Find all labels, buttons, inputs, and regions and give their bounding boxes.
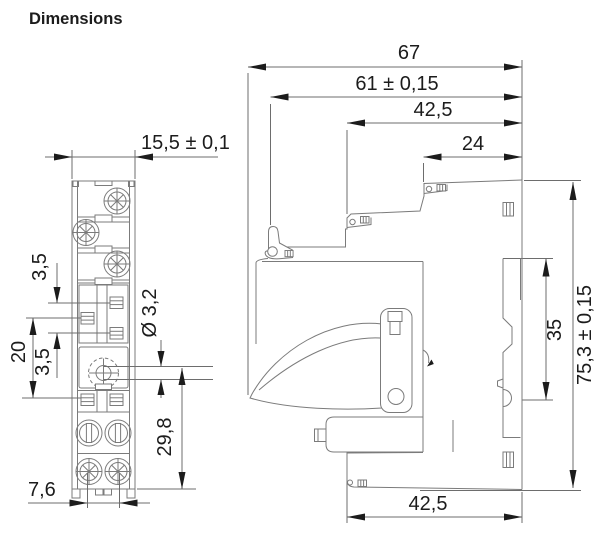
dim-label-front-width: 15,5 ± 0,1 <box>141 132 230 154</box>
dim-front-pitch-lower: 3,5 <box>32 333 61 378</box>
side-view: 67 61 ± 0,15 42,5 24 35 <box>248 42 596 523</box>
dim-side-upper-depth: 42,5 <box>347 99 522 127</box>
dim-label-front-pitch-lower: 3,5 <box>32 348 54 376</box>
front-view: 15,5 ± 0,1 3,5 20 3, <box>8 132 230 508</box>
side-extension-lines <box>248 60 581 523</box>
lower-body <box>347 453 522 490</box>
terminal-screw <box>104 251 130 277</box>
release-lever <box>265 227 293 259</box>
terminal-screw <box>73 220 99 246</box>
dim-label-front-pitch-upper: 3,5 <box>29 253 51 281</box>
dim-side-rail-height: 35 <box>543 259 567 401</box>
dim-label-side-top-section: 24 <box>462 133 484 155</box>
dim-front-hole: Ø 3,2 <box>139 289 165 398</box>
dim-label-front-hole-to-bottom: 29,8 <box>154 418 176 457</box>
dim-label-side-total-height: 75,3 ± 0,15 <box>574 285 596 385</box>
dim-label-side-upper-depth: 42,5 <box>414 99 453 121</box>
dim-side-body-depth: 61 ± 0,15 <box>271 73 523 101</box>
latch-ledge-mid <box>347 217 371 228</box>
dim-label-side-body-depth: 61 ± 0,15 <box>355 73 438 95</box>
dim-label-front-screw-spacing: 7,6 <box>28 479 56 501</box>
contact-slot <box>110 297 123 309</box>
dim-side-lower-depth: 42,5 <box>347 493 522 521</box>
dim-side-total-height: 75,3 ± 0,15 <box>570 182 597 488</box>
dim-front-width: 15,5 ± 0,1 <box>45 132 230 179</box>
contact-slot <box>110 328 123 340</box>
dim-side-top-section: 24 <box>424 133 523 161</box>
din-release-claw <box>250 309 434 413</box>
dim-side-total-depth: 67 <box>248 42 522 71</box>
dim-label-front-hole: Ø 3,2 <box>139 289 161 338</box>
terminal-screw <box>104 188 130 214</box>
dim-front-pitch-upper: 3,5 <box>29 253 61 303</box>
contact-slot <box>81 394 94 406</box>
technical-drawing: Dimensions <box>0 0 600 537</box>
front-body <box>72 181 135 498</box>
dim-label-front-span: 20 <box>8 341 30 363</box>
dim-label-side-lower-depth: 42,5 <box>409 493 448 515</box>
dimensions-drawing-page: Dimensions <box>0 0 600 537</box>
dim-front-hole-to-bottom: 29,8 <box>154 368 186 489</box>
mounting-screw <box>76 459 102 485</box>
dim-label-side-rail-height: 35 <box>544 319 566 341</box>
din-rail-profile <box>498 259 521 438</box>
slotted-screw <box>76 420 102 446</box>
page-title: Dimensions <box>29 10 123 28</box>
side-body <box>250 180 522 490</box>
contact-slot <box>81 313 94 325</box>
rear-clip-lower <box>503 452 514 468</box>
mounting-screw <box>105 459 131 485</box>
slotted-screw <box>105 420 131 446</box>
latch-ledge-top <box>424 185 447 194</box>
lower-protrusion <box>315 417 454 452</box>
contact-slot <box>110 394 123 406</box>
dim-label-side-total-depth: 67 <box>398 42 420 64</box>
rear-clip-upper <box>503 203 514 217</box>
